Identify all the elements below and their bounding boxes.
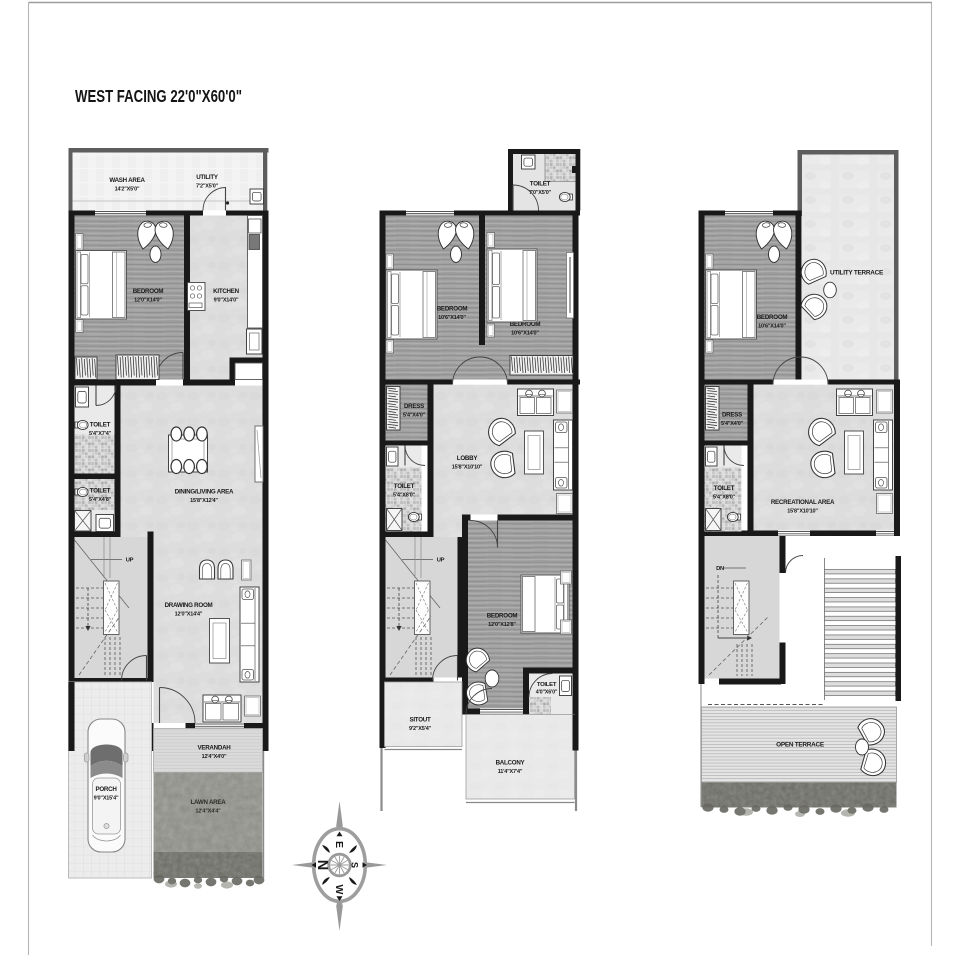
svg-text:VERANDAH: VERANDAH xyxy=(197,745,231,752)
svg-text:7'2"X5'0": 7'2"X5'0" xyxy=(196,183,219,189)
svg-text:10'6"X14'0": 10'6"X14'0" xyxy=(758,323,786,329)
svg-text:DN: DN xyxy=(716,566,724,572)
svg-text:TOILET: TOILET xyxy=(90,488,111,495)
svg-text:15'8"X10'10": 15'8"X10'10" xyxy=(452,464,483,470)
svg-text:12'0"X14'4": 12'0"X14'4" xyxy=(175,611,203,617)
svg-text:KITCHEN: KITCHEN xyxy=(213,288,240,295)
svg-text:15'8"X12'4": 15'8"X12'4" xyxy=(190,498,218,504)
svg-text:BEDROOM: BEDROOM xyxy=(133,288,164,295)
svg-text:5'4"X4'8": 5'4"X4'8" xyxy=(89,497,112,503)
svg-text:10'6"X14'0": 10'6"X14'0" xyxy=(511,330,539,336)
svg-text:DINING/LIVING AREA: DINING/LIVING AREA xyxy=(175,489,234,496)
svg-text:4'0"X6'0": 4'0"X6'0" xyxy=(536,690,558,696)
svg-text:TOILET: TOILET xyxy=(530,181,551,188)
svg-text:W: W xyxy=(333,885,345,895)
svg-text:RECREATIONAL AREA: RECREATIONAL AREA xyxy=(771,499,835,506)
svg-text:S: S xyxy=(349,862,359,868)
svg-text:15'8"X10'10": 15'8"X10'10" xyxy=(787,508,818,514)
svg-text:5'4"X4'0": 5'4"X4'0" xyxy=(403,412,426,418)
svg-text:BALCONY: BALCONY xyxy=(496,760,526,767)
svg-text:5'4"X4'0": 5'4"X4'0" xyxy=(721,421,744,427)
svg-text:10'6"X14'0": 10'6"X14'0" xyxy=(438,315,466,321)
svg-text:UTILITY TERRACE: UTILITY TERRACE xyxy=(830,270,884,277)
svg-text:11'4"X7'4": 11'4"X7'4" xyxy=(498,769,523,775)
svg-text:14'2"X5'0": 14'2"X5'0" xyxy=(115,186,140,192)
svg-text:BEDROOM: BEDROOM xyxy=(757,314,788,321)
svg-text:N: N xyxy=(314,860,330,870)
svg-text:LOBBY: LOBBY xyxy=(457,455,479,462)
svg-text:DRAWING ROOM: DRAWING ROOM xyxy=(165,602,213,609)
svg-text:TOILET: TOILET xyxy=(537,682,557,688)
svg-text:SITOUT: SITOUT xyxy=(409,717,431,724)
svg-text:9'0"X15'4": 9'0"X15'4" xyxy=(94,795,119,801)
svg-text:UP: UP xyxy=(437,558,445,564)
svg-text:WEST FACING 22'0"X60'0": WEST FACING 22'0"X60'0" xyxy=(75,86,242,106)
svg-text:9'2"X5'4": 9'2"X5'4" xyxy=(409,726,432,732)
svg-text:PORCH: PORCH xyxy=(95,786,117,793)
svg-text:7'0"X5'0": 7'0"X5'0" xyxy=(529,190,552,196)
svg-text:WASH AREA: WASH AREA xyxy=(109,177,145,184)
svg-text:12'4"X4'0": 12'4"X4'0" xyxy=(202,754,227,760)
svg-text:UP: UP xyxy=(126,558,134,564)
svg-text:E: E xyxy=(333,841,345,848)
svg-text:BEDROOM: BEDROOM xyxy=(437,306,468,313)
svg-text:12'4"X4'4": 12'4"X4'4" xyxy=(195,808,221,814)
svg-text:BEDROOM: BEDROOM xyxy=(487,613,518,620)
svg-text:5'4"X7'4": 5'4"X7'4" xyxy=(89,431,112,437)
svg-text:LAWN AREA: LAWN AREA xyxy=(191,799,227,806)
svg-text:TOILET: TOILET xyxy=(714,485,735,492)
svg-text:UTILITY: UTILITY xyxy=(196,174,219,181)
svg-text:12'0"X14'0": 12'0"X14'0" xyxy=(134,297,162,303)
svg-text:TOILET: TOILET xyxy=(90,422,111,429)
svg-text:DRESS: DRESS xyxy=(722,412,742,419)
svg-text:5'4"X8'0": 5'4"X8'0" xyxy=(393,492,416,498)
svg-text:5'4"X8'0": 5'4"X8'0" xyxy=(713,494,736,500)
svg-text:OPEN TERRACE: OPEN TERRACE xyxy=(776,742,825,749)
svg-text:TOILET: TOILET xyxy=(394,483,415,490)
svg-text:12'0"X12'8": 12'0"X12'8" xyxy=(488,622,516,628)
svg-text:9'0"X14'0": 9'0"X14'0" xyxy=(214,297,239,303)
svg-text:DRESS: DRESS xyxy=(404,403,424,410)
